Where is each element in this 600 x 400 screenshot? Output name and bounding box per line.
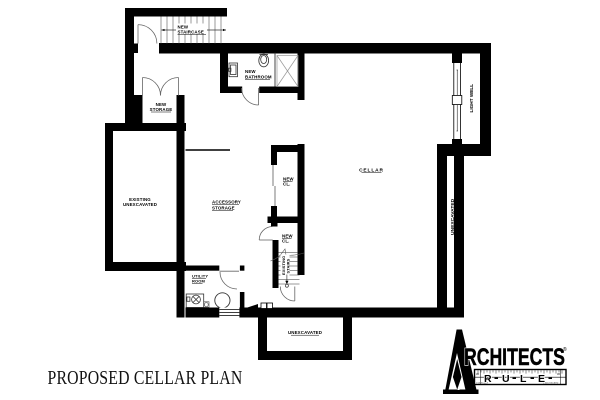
svg-text:®: ® [563, 346, 567, 353]
svg-text:RCHITECTS: RCHITECTS [464, 343, 565, 371]
svg-text:L: L [520, 373, 527, 385]
svg-text:BATHROOM: BATHROOM [245, 74, 272, 79]
svg-text:STORAGE: STORAGE [212, 206, 235, 211]
svg-text:STORAGE: STORAGE [150, 107, 173, 112]
svg-text:R: R [484, 373, 492, 385]
svg-text:E: E [538, 373, 545, 385]
svg-text:UNEXCAVATED: UNEXCAVATED [123, 202, 157, 207]
svg-text:1.800.745.3870: 1.800.745.3870 [543, 383, 559, 385]
svg-text:UNEXCAVATED: UNEXCAVATED [450, 198, 456, 235]
svg-text:PROPOSED CELLAR PLAN: PROPOSED CELLAR PLAN [48, 366, 243, 388]
svg-text:NEW: NEW [282, 233, 293, 238]
svg-text:STAIRS: STAIRS [286, 258, 291, 273]
svg-text:ACCESSORY: ACCESSORY [212, 200, 241, 205]
svg-text:U: U [502, 373, 510, 385]
svg-text:STAIRCASE: STAIRCASE [178, 29, 204, 34]
svg-text:UNEXCAVATED: UNEXCAVATED [288, 330, 322, 335]
svg-text:CL.: CL. [282, 239, 290, 244]
svg-text:NEW: NEW [245, 69, 256, 74]
svg-text:ROOM: ROOM [192, 279, 206, 284]
svg-text:NEW: NEW [283, 176, 294, 181]
svg-text:CL.: CL. [283, 182, 291, 187]
svg-text:LIGHT WELL: LIGHT WELL [469, 84, 474, 113]
